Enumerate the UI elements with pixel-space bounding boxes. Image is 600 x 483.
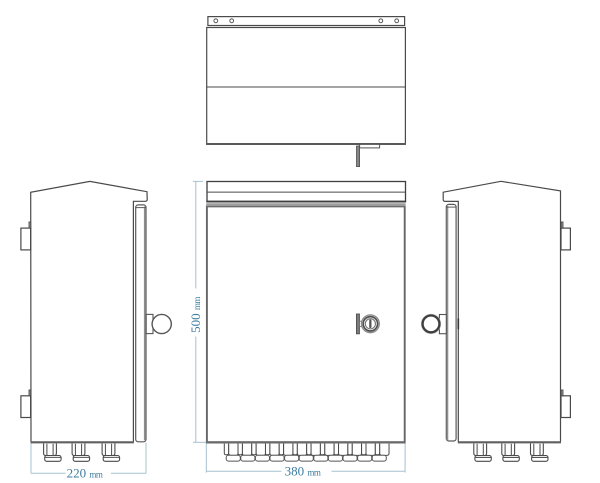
- svg-text:380 mm: 380 mm: [285, 463, 321, 478]
- svg-text:500 mm: 500 mm: [188, 297, 203, 333]
- svg-text:220 mm: 220 mm: [67, 465, 103, 480]
